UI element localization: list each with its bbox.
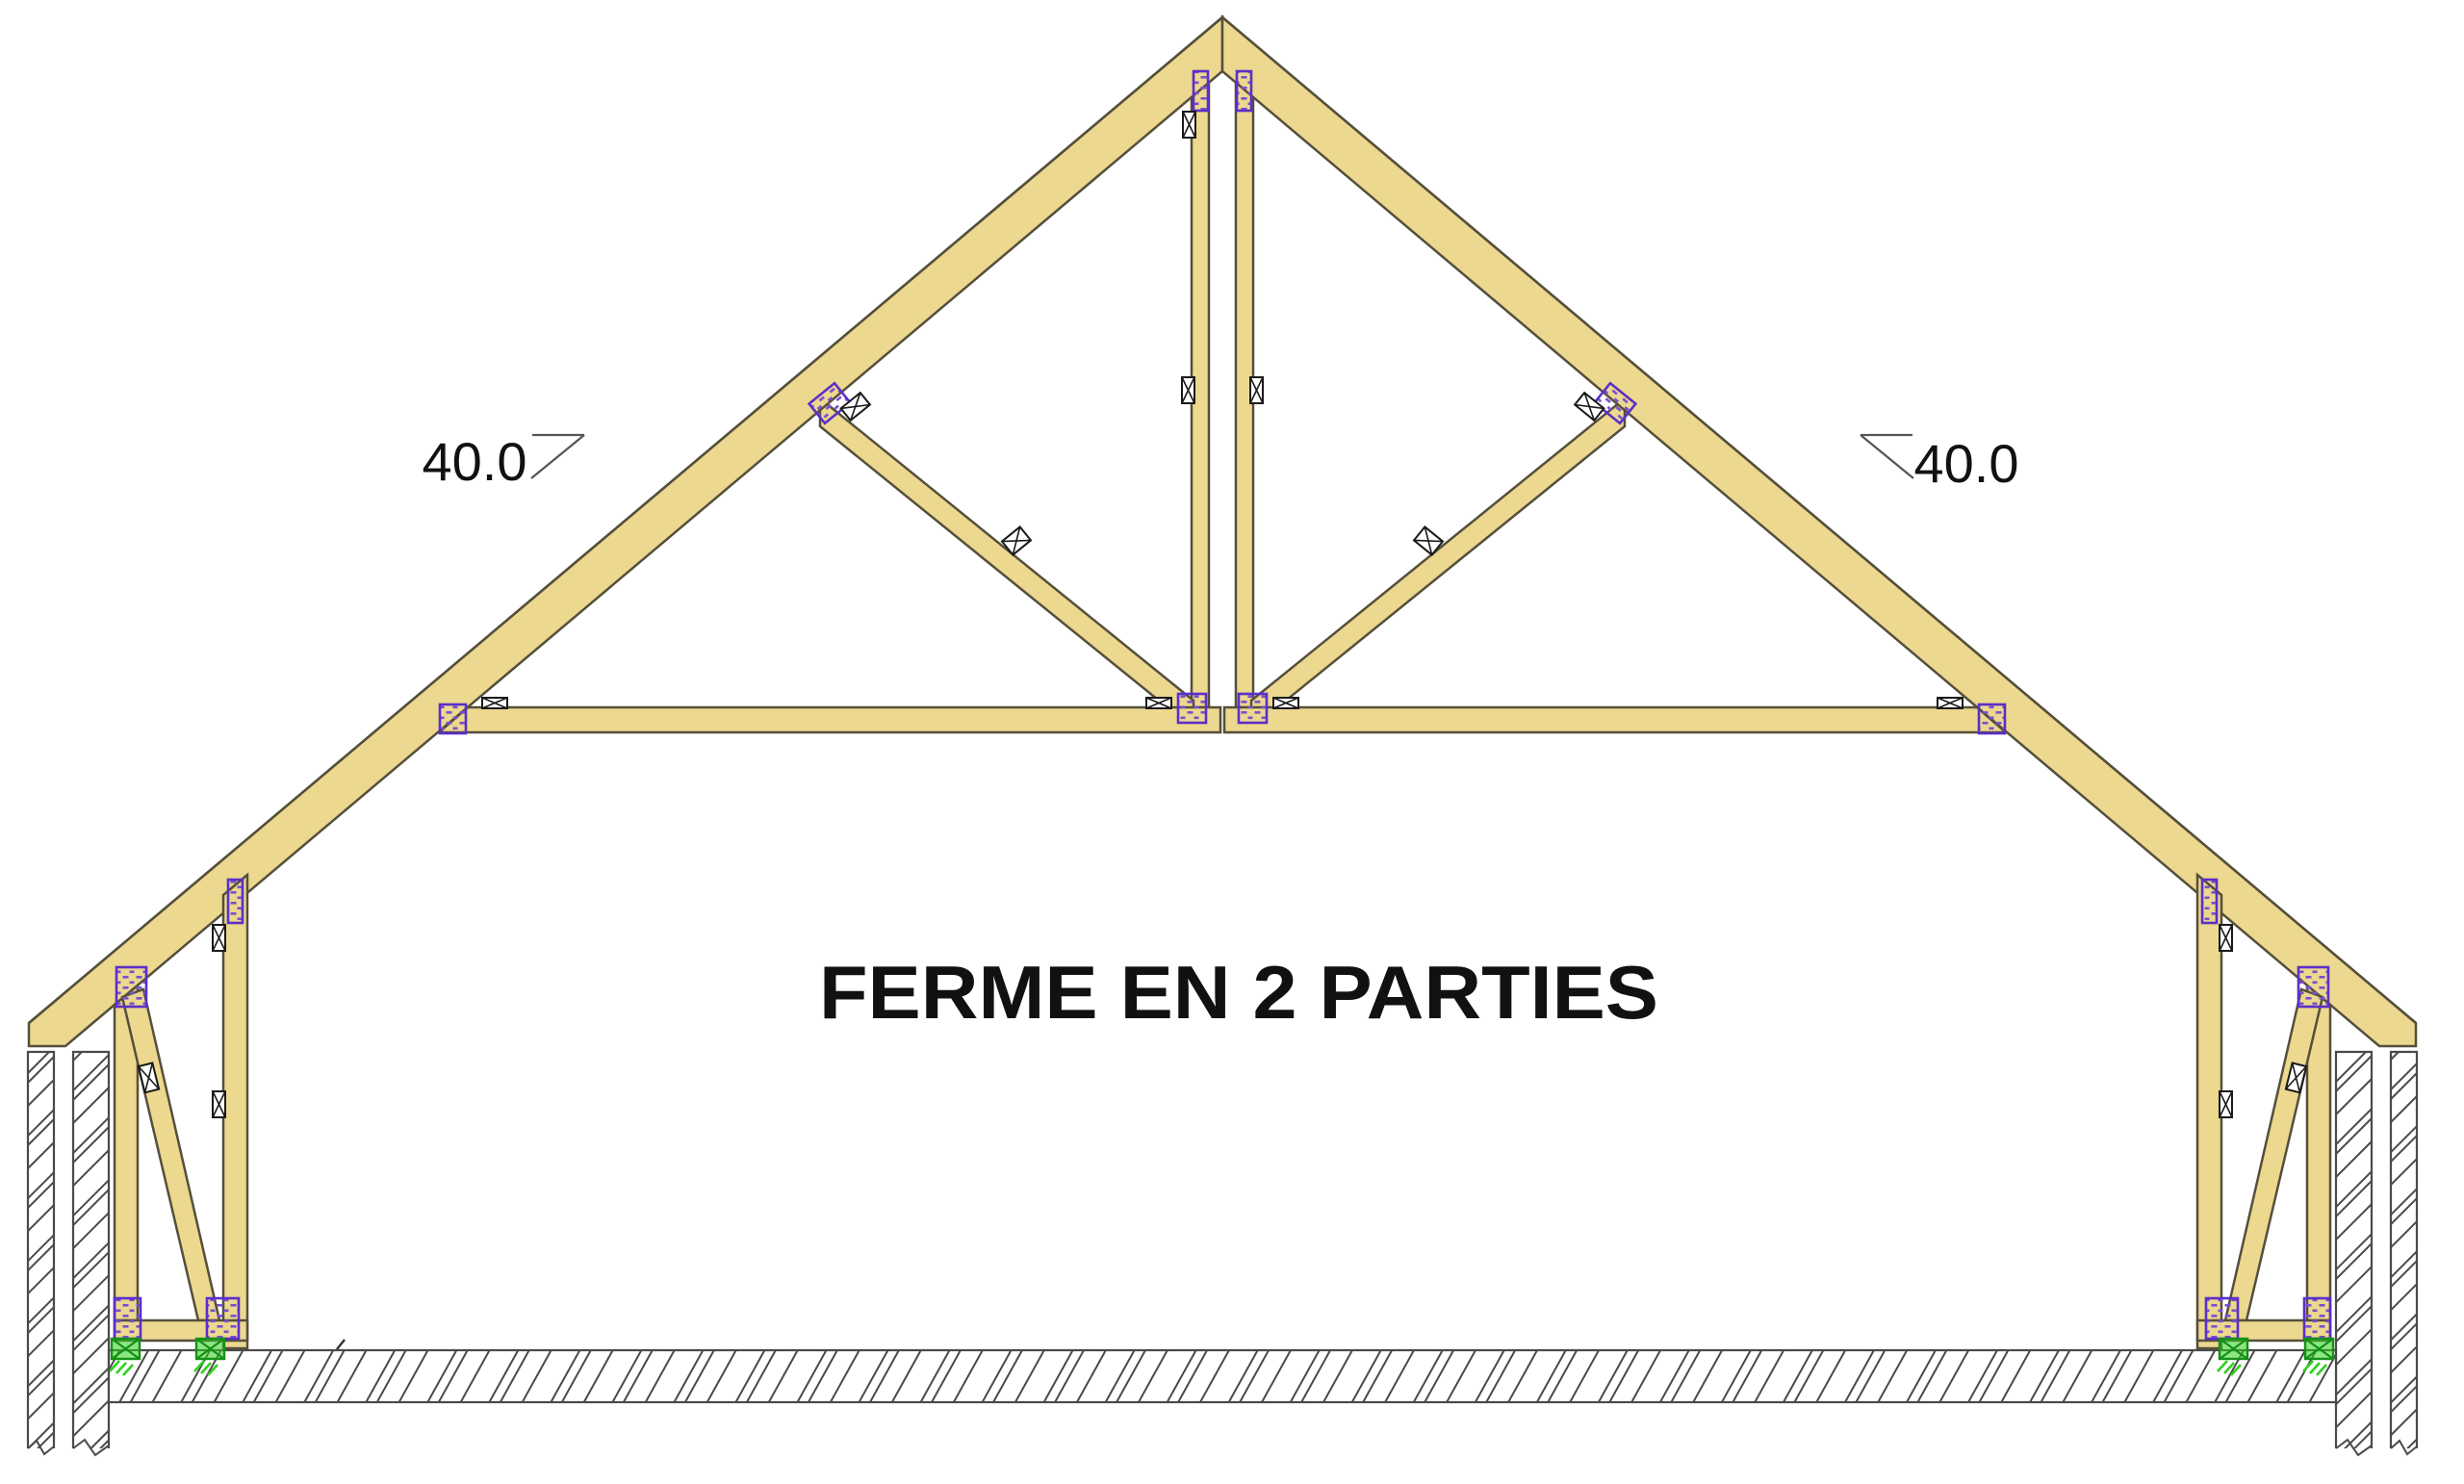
plate-sole-inner-right bbox=[2206, 1298, 2238, 1339]
plate-center-left bbox=[1178, 694, 1206, 723]
right-slope-value: 40.0 bbox=[1914, 433, 2019, 494]
right-slope-annotation: 40.0 bbox=[1861, 433, 2019, 494]
right-strut bbox=[1251, 398, 1625, 729]
bolt-icon bbox=[2220, 1091, 2232, 1117]
left-rafter bbox=[29, 17, 1222, 1046]
plate-apex-left bbox=[1193, 71, 1208, 111]
plate-sole-outer-right bbox=[2304, 1298, 2330, 1339]
plate-tall-post-left bbox=[228, 880, 243, 923]
plate-tie-end-left bbox=[440, 704, 466, 733]
left-rafter-top-edge bbox=[29, 17, 1222, 1023]
plate-tie-end-right bbox=[1979, 704, 2005, 733]
left-strut bbox=[820, 398, 1193, 729]
bolt-icon bbox=[213, 925, 225, 951]
floor-slab bbox=[109, 1340, 2336, 1402]
right-masonry-wall bbox=[2336, 1052, 2417, 1455]
bolt-icon bbox=[2220, 925, 2232, 951]
wall-leaf-inner bbox=[2336, 1052, 2372, 1448]
plate-short-post-right bbox=[2298, 967, 2328, 1007]
plate-short-post-left bbox=[116, 967, 146, 1007]
left-slope-value: 40.0 bbox=[423, 431, 527, 492]
wall-leaf-outer bbox=[2391, 1052, 2417, 1448]
wall-leaf-inner bbox=[73, 1052, 109, 1448]
left-slope-annotation: 40.0 bbox=[423, 431, 585, 492]
bolt-icon bbox=[1938, 698, 1963, 708]
left-wall-tall-post bbox=[223, 875, 247, 1348]
plate-center-right bbox=[1239, 694, 1267, 723]
slope-angle-icon bbox=[1861, 435, 1913, 478]
connector-plates bbox=[115, 71, 2330, 1339]
wall-leaf-outer bbox=[28, 1052, 54, 1448]
right-rafter bbox=[1222, 17, 2416, 1046]
left-masonry-wall bbox=[28, 1052, 109, 1455]
left-tie-beam bbox=[439, 707, 1220, 732]
plate-tall-post-right bbox=[2202, 880, 2217, 923]
bolt-icon bbox=[1250, 377, 1263, 403]
slope-angle-icon bbox=[531, 435, 584, 478]
truss-drawing: 40.0 40.0 FERME EN 2 PARTIES bbox=[0, 0, 2464, 1484]
right-wall-tall-post bbox=[2197, 875, 2221, 1348]
bolt-icon bbox=[1182, 377, 1194, 403]
plate-sole-inner-left bbox=[207, 1298, 239, 1339]
right-tie-beam bbox=[1224, 707, 2006, 732]
bolt-icon bbox=[1273, 698, 1298, 708]
drawing-title: FERME EN 2 PARTIES bbox=[819, 950, 1658, 1035]
plate-apex-right bbox=[1237, 71, 1251, 111]
plate-sole-outer-left bbox=[115, 1298, 141, 1339]
bolt-icon bbox=[482, 698, 507, 708]
bolt-icon bbox=[1146, 698, 1171, 708]
bolt-icon bbox=[213, 1091, 225, 1117]
right-rafter-top-edge bbox=[1222, 17, 2416, 1023]
slab-tick-mark bbox=[337, 1340, 345, 1349]
bolt-icon bbox=[1183, 112, 1195, 138]
